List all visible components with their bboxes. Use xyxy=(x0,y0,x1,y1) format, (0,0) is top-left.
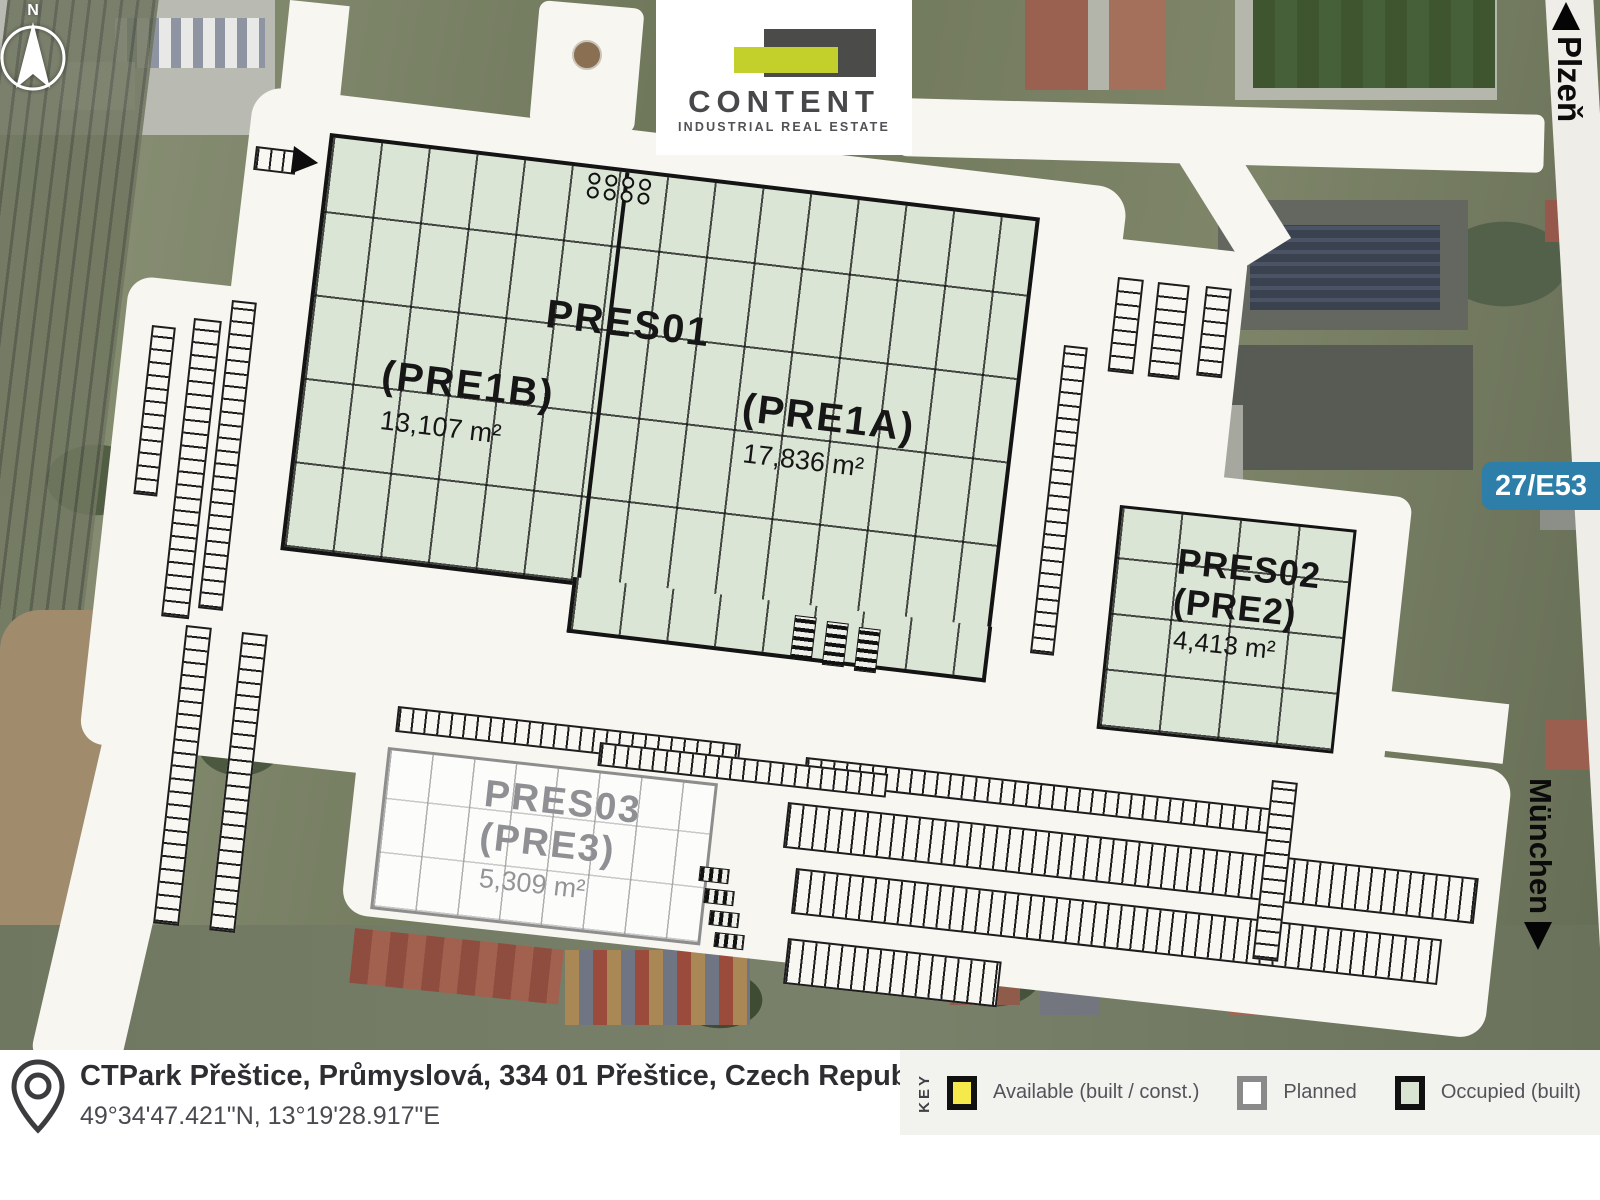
legend-item-planned: Planned xyxy=(1237,1076,1356,1110)
sat-red-roofs-top xyxy=(1025,0,1165,90)
logo-mark-accent xyxy=(734,47,838,73)
ground-east-connector xyxy=(1373,690,1509,764)
building-pres02[interactable]: PRES02 (PRE2) 4,413 m² xyxy=(1096,505,1356,754)
truck-dock-icon xyxy=(698,866,729,884)
logo-brand: CONTENT xyxy=(656,84,912,120)
sat-soccer-field xyxy=(1253,0,1495,88)
pres03-area: 5,309 m² xyxy=(477,863,586,906)
compass: N xyxy=(0,0,72,100)
legend-swatch-occupied xyxy=(1395,1076,1425,1110)
building-pres01[interactable]: PRES01 (PRE1B) 13,107 m² (PRE1A) 17,836 … xyxy=(280,133,1040,635)
truck-dock-icon xyxy=(703,888,734,906)
logo-tagline: INDUSTRIAL REAL ESTATE xyxy=(656,120,912,134)
legend-item-available: Available (built / const.) xyxy=(947,1076,1199,1110)
pres01-entrance-arrow-icon xyxy=(291,146,320,177)
legend-label-planned: Planned xyxy=(1283,1081,1356,1104)
site-plan-map: PRES01 (PRE1B) 13,107 m² (PRE1A) 17,836 … xyxy=(0,0,1600,1200)
legend-title: KEY xyxy=(916,1073,933,1113)
pres01-roof-units xyxy=(586,172,655,206)
footer-address: CTPark Přeštice, Průmyslová, 334 01 Přeš… xyxy=(80,1060,941,1093)
footer-coordinates: 49°34'47.421"N, 13°19'28.917"E xyxy=(80,1102,440,1131)
munchen-arrow-icon xyxy=(1524,922,1552,950)
legend-item-occupied: Occupied (built) xyxy=(1395,1076,1581,1110)
pres01-unita-area: 17,836 m² xyxy=(741,438,865,483)
footer: CTPark Přeštice, Průmyslová, 334 01 Přeš… xyxy=(0,1050,1600,1200)
logo-box: CONTENT INDUSTRIAL REAL ESTATE xyxy=(656,0,912,155)
legend-label-available: Available (built / const.) xyxy=(993,1081,1199,1104)
truck-dock-icon xyxy=(708,910,739,928)
legend-label-occupied: Occupied (built) xyxy=(1441,1081,1581,1104)
pres01-unitb-area: 13,107 m² xyxy=(378,405,502,450)
legend: KEY Available (built / const.) Planned O… xyxy=(900,1050,1600,1135)
compass-north-label: N xyxy=(27,2,39,19)
pres01-title: PRES01 xyxy=(543,292,713,356)
sat-gray-industrial-2 xyxy=(1228,345,1473,470)
logo-mark xyxy=(734,29,884,77)
truck-dock-icon xyxy=(713,932,744,950)
road-label-munchen: München xyxy=(1522,778,1558,914)
ground-northwest-road xyxy=(278,0,350,121)
legend-swatch-available xyxy=(947,1076,977,1110)
pres01-divider-wall xyxy=(577,172,630,582)
roundabout-center xyxy=(572,40,602,70)
route-badge: 27/E53 xyxy=(1482,462,1600,510)
location-pin-icon xyxy=(10,1058,66,1141)
sat-container-yard xyxy=(565,950,750,1025)
plzen-arrow-icon xyxy=(1552,2,1580,30)
legend-swatch-planned xyxy=(1237,1076,1267,1110)
road-label-plzen: Plzeň xyxy=(1550,36,1588,122)
compass-needle-icon xyxy=(16,22,50,88)
route-badge-label: 27/E53 xyxy=(1495,470,1587,503)
